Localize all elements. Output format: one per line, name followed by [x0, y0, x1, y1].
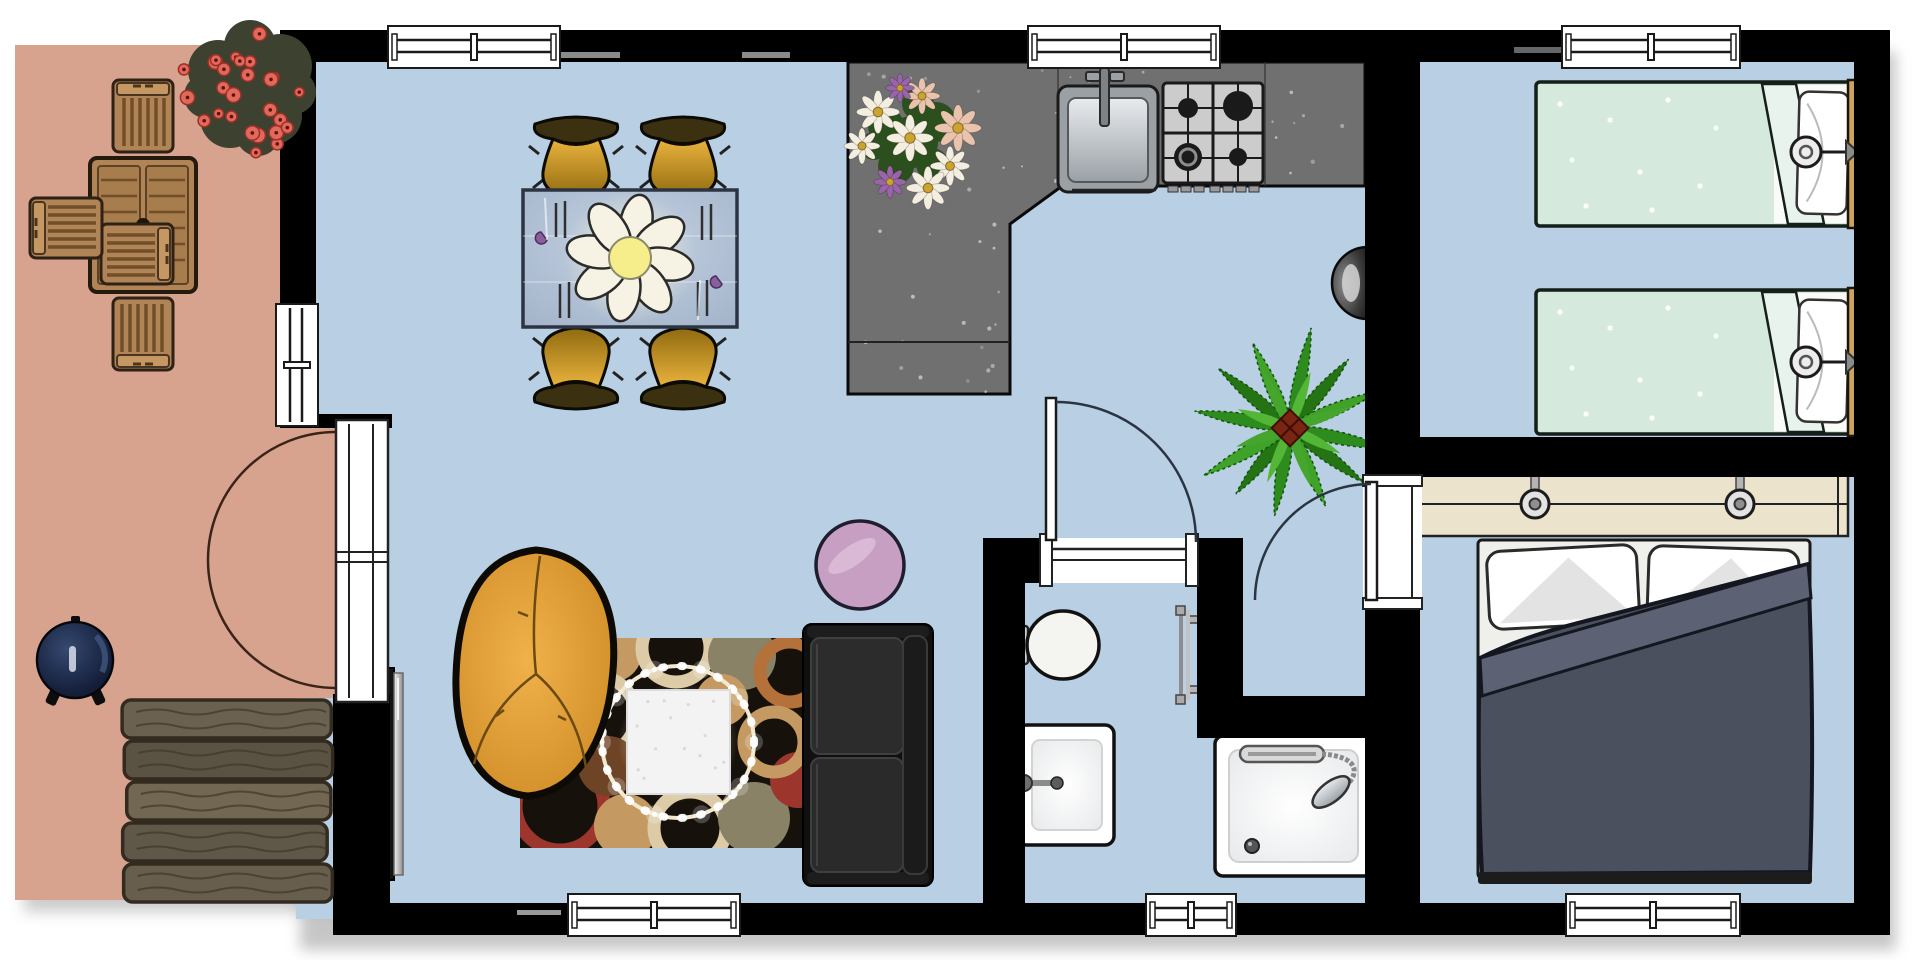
floor-plan-canvas	[0, 0, 1920, 960]
wall-bathroom-left	[983, 583, 1025, 903]
window	[1562, 26, 1740, 68]
terrace-chair-bottom	[113, 298, 173, 370]
window	[1566, 894, 1740, 936]
sofa	[803, 624, 933, 886]
bathroom-sink	[1012, 725, 1114, 845]
wall-bedroom-divider-lower	[1365, 607, 1420, 903]
wall-bathroom-right	[1197, 583, 1243, 710]
window	[388, 26, 560, 68]
terrace-chair-left	[30, 198, 102, 258]
double-bed	[1478, 540, 1812, 884]
terrace-chair-right	[101, 224, 173, 284]
pink-round-rug	[816, 521, 904, 609]
window	[1146, 894, 1236, 936]
terrace-chair-top	[113, 80, 173, 152]
sink-faucet	[1100, 68, 1109, 126]
wall-twin-master-divider	[1420, 437, 1854, 477]
wall-bedroom-divider-upper	[1365, 62, 1420, 477]
bean-bag	[456, 550, 614, 796]
terrace-threshold	[296, 424, 340, 698]
shower	[1215, 736, 1372, 876]
wall-right	[1854, 30, 1890, 935]
wall-bathroom-top-left	[983, 538, 1042, 583]
window	[1028, 26, 1220, 68]
wall-left-lower	[333, 694, 390, 935]
floor-plan-drawing	[0, 0, 1920, 960]
wall-shower-top	[1197, 696, 1372, 738]
door-leaf	[1366, 482, 1377, 600]
wall-bathroom-top-right	[1197, 538, 1243, 583]
oven-vent-dashes	[1168, 186, 1259, 192]
kitchen-sink	[1058, 68, 1158, 192]
pendant-flower-lamp	[564, 192, 696, 324]
window	[568, 894, 740, 936]
door-leaf	[1046, 398, 1056, 540]
deck-steps	[122, 700, 332, 902]
window	[276, 304, 318, 426]
